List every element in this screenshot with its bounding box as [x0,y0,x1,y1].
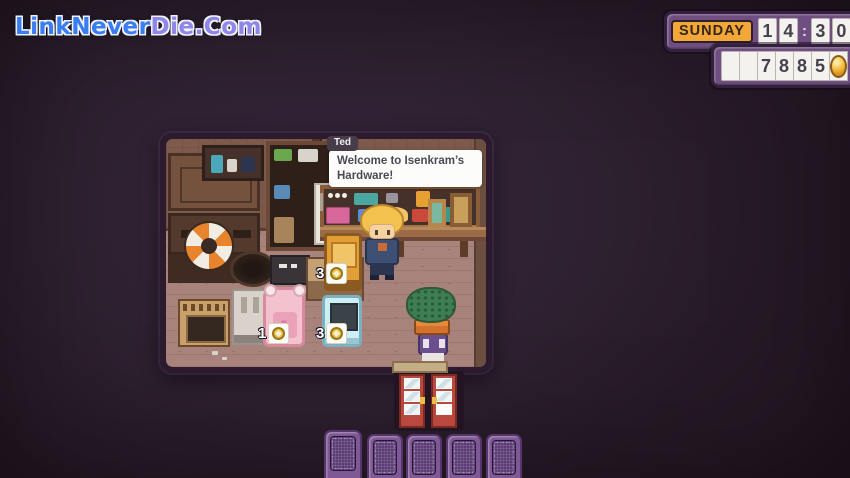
door-mat [392,361,448,373]
watermark-part2: Die.Com [151,14,262,40]
door-handle-icon [420,397,425,404]
price-tag-tv: 3 [316,323,347,344]
shelf-jar-teal [211,155,223,173]
hotbar-slot-4[interactable] [446,434,482,478]
hotbar-slot-2[interactable] [367,434,403,478]
dialog-speaker-tag: Ted [327,136,358,151]
money-digit: 5 [811,51,830,81]
hotbar-slot-3[interactable] [406,434,442,478]
npc-ted[interactable] [360,200,404,282]
floor-debris [212,351,218,355]
clock-digit: 1 [758,18,777,46]
shelf-item-blue [274,185,290,199]
game-screen: LinkNeverDie.Com SUNDAY 1 4 : 3 0 7 8 8 … [0,0,850,478]
dialog-line: Hardware! [337,169,474,184]
shelf-jar-navy [241,157,255,172]
watermark: LinkNeverDie.Com [15,14,262,40]
clock-digit: 3 [811,18,830,46]
shelf-item-box [274,217,294,243]
price-tag-bear: 1 [258,323,289,344]
floor-debris [222,357,227,360]
price-value: 1 [258,326,266,341]
price-value: 3 [316,326,324,341]
shop-entrance-door[interactable] [394,371,464,431]
dark-appliance [270,255,310,285]
shelf-red-box [412,209,428,222]
gold-coin-icon [330,267,343,280]
gold-coin-icon [830,55,847,78]
money-counter: 7 8 8 5 [721,51,848,81]
potted-plant [406,287,456,323]
door-handle-icon [432,397,437,404]
player-character [406,287,458,367]
shelf-pink-crate [326,207,350,224]
gold-coin-icon [272,327,285,340]
money-digit [739,51,758,81]
shelf-item-white [298,149,318,162]
money-digit: 8 [775,51,794,81]
picture-frame-small [428,199,446,227]
day-label: SUNDAY [671,20,753,43]
life-preserver-ring [186,223,232,269]
gold-coin-icon [330,327,343,340]
speaker-amp [178,299,230,347]
hotbar-slot-1-selected[interactable] [324,430,362,478]
money-coin-cell [829,51,848,81]
hotbar-slot-5[interactable] [486,434,522,478]
ted-face [369,224,395,239]
money-digit: 7 [757,51,776,81]
money-digit: 8 [793,51,812,81]
clock-colon: : [800,23,809,41]
clock: 1 4 : 3 0 [758,18,850,46]
clock-digit: 0 [832,18,850,46]
hud-money-panel: 7 8 8 5 [711,44,850,88]
money-digit [721,51,740,81]
dialog-line: Welcome to Isenkram’s [337,154,474,169]
dialog-box[interactable]: Welcome to Isenkram’s Hardware! [329,150,482,187]
jar-shelf [202,145,264,181]
shelf-jar-white [227,159,237,172]
picture-frame-large [450,193,472,227]
price-value: 3 [316,266,324,281]
price-tag-arcade: 3 [316,263,347,284]
shelf-item-green [274,149,292,161]
watermark-part1: LinkNever [15,14,151,40]
clock-digit: 4 [779,18,798,46]
